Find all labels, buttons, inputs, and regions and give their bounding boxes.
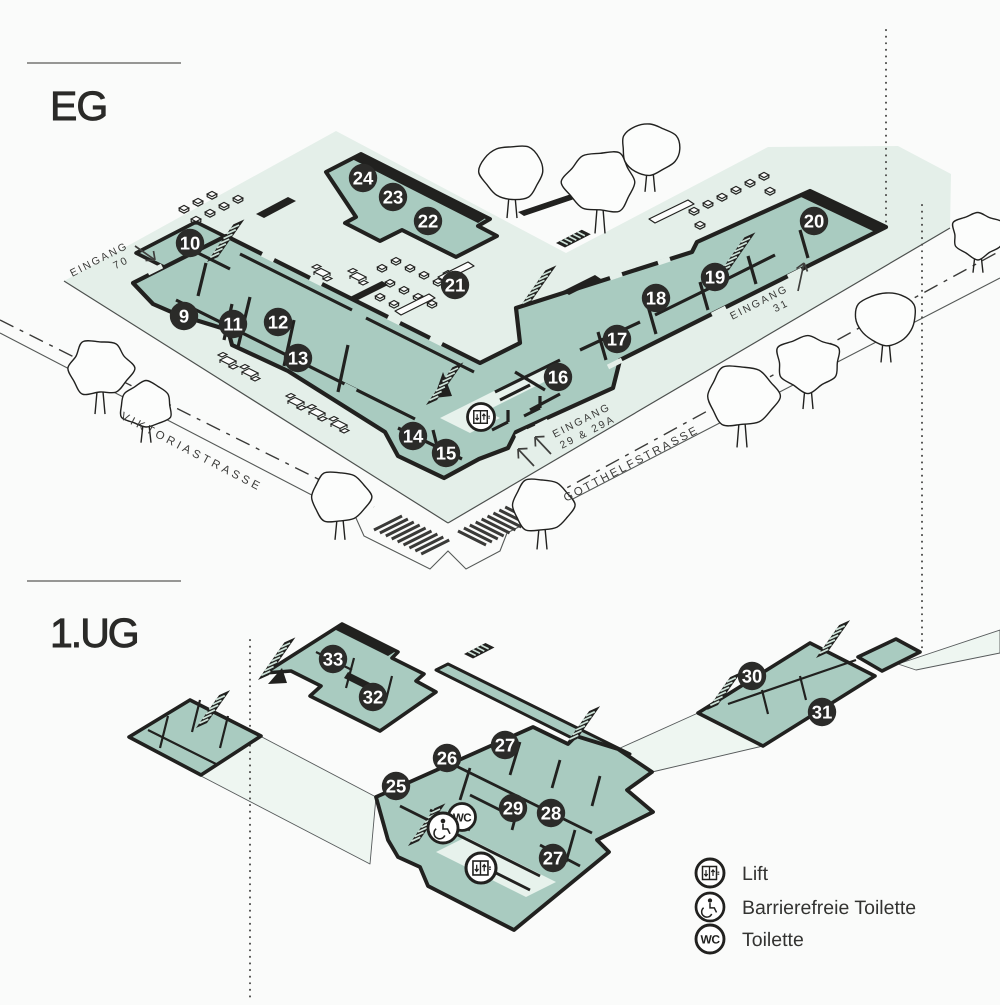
- svg-text:14: 14: [403, 425, 424, 446]
- svg-text:30: 30: [742, 665, 763, 686]
- svg-text:19: 19: [705, 266, 726, 287]
- svg-text:EG: EG: [50, 83, 107, 129]
- svg-text:26: 26: [437, 747, 458, 768]
- svg-text:1.UG: 1.UG: [50, 610, 138, 656]
- svg-text:12: 12: [268, 311, 289, 332]
- svg-text:13: 13: [288, 347, 309, 368]
- svg-text:Lift: Lift: [742, 863, 769, 885]
- svg-text:18: 18: [646, 287, 667, 308]
- svg-text:20: 20: [804, 210, 825, 231]
- svg-text:27: 27: [543, 847, 564, 868]
- svg-text:32: 32: [363, 686, 384, 707]
- svg-text:15: 15: [436, 442, 457, 463]
- svg-text:WC: WC: [701, 933, 721, 947]
- svg-text:17: 17: [607, 328, 628, 349]
- svg-text:10: 10: [180, 232, 201, 253]
- svg-text:33: 33: [323, 648, 344, 669]
- svg-text:22: 22: [418, 210, 439, 231]
- svg-text:27: 27: [495, 734, 516, 755]
- svg-text:9: 9: [179, 305, 189, 326]
- svg-text:Barrierefreie Toilette: Barrierefreie Toilette: [742, 897, 916, 919]
- svg-text:Toilette: Toilette: [742, 929, 804, 951]
- svg-text:24: 24: [353, 167, 374, 188]
- svg-text:28: 28: [541, 802, 562, 823]
- svg-text:23: 23: [383, 186, 404, 207]
- svg-text:11: 11: [223, 313, 243, 334]
- svg-text:21: 21: [445, 274, 466, 295]
- svg-text:29: 29: [503, 797, 524, 818]
- svg-text:16: 16: [548, 366, 569, 387]
- svg-text:31: 31: [812, 701, 833, 722]
- svg-text:25: 25: [386, 775, 407, 796]
